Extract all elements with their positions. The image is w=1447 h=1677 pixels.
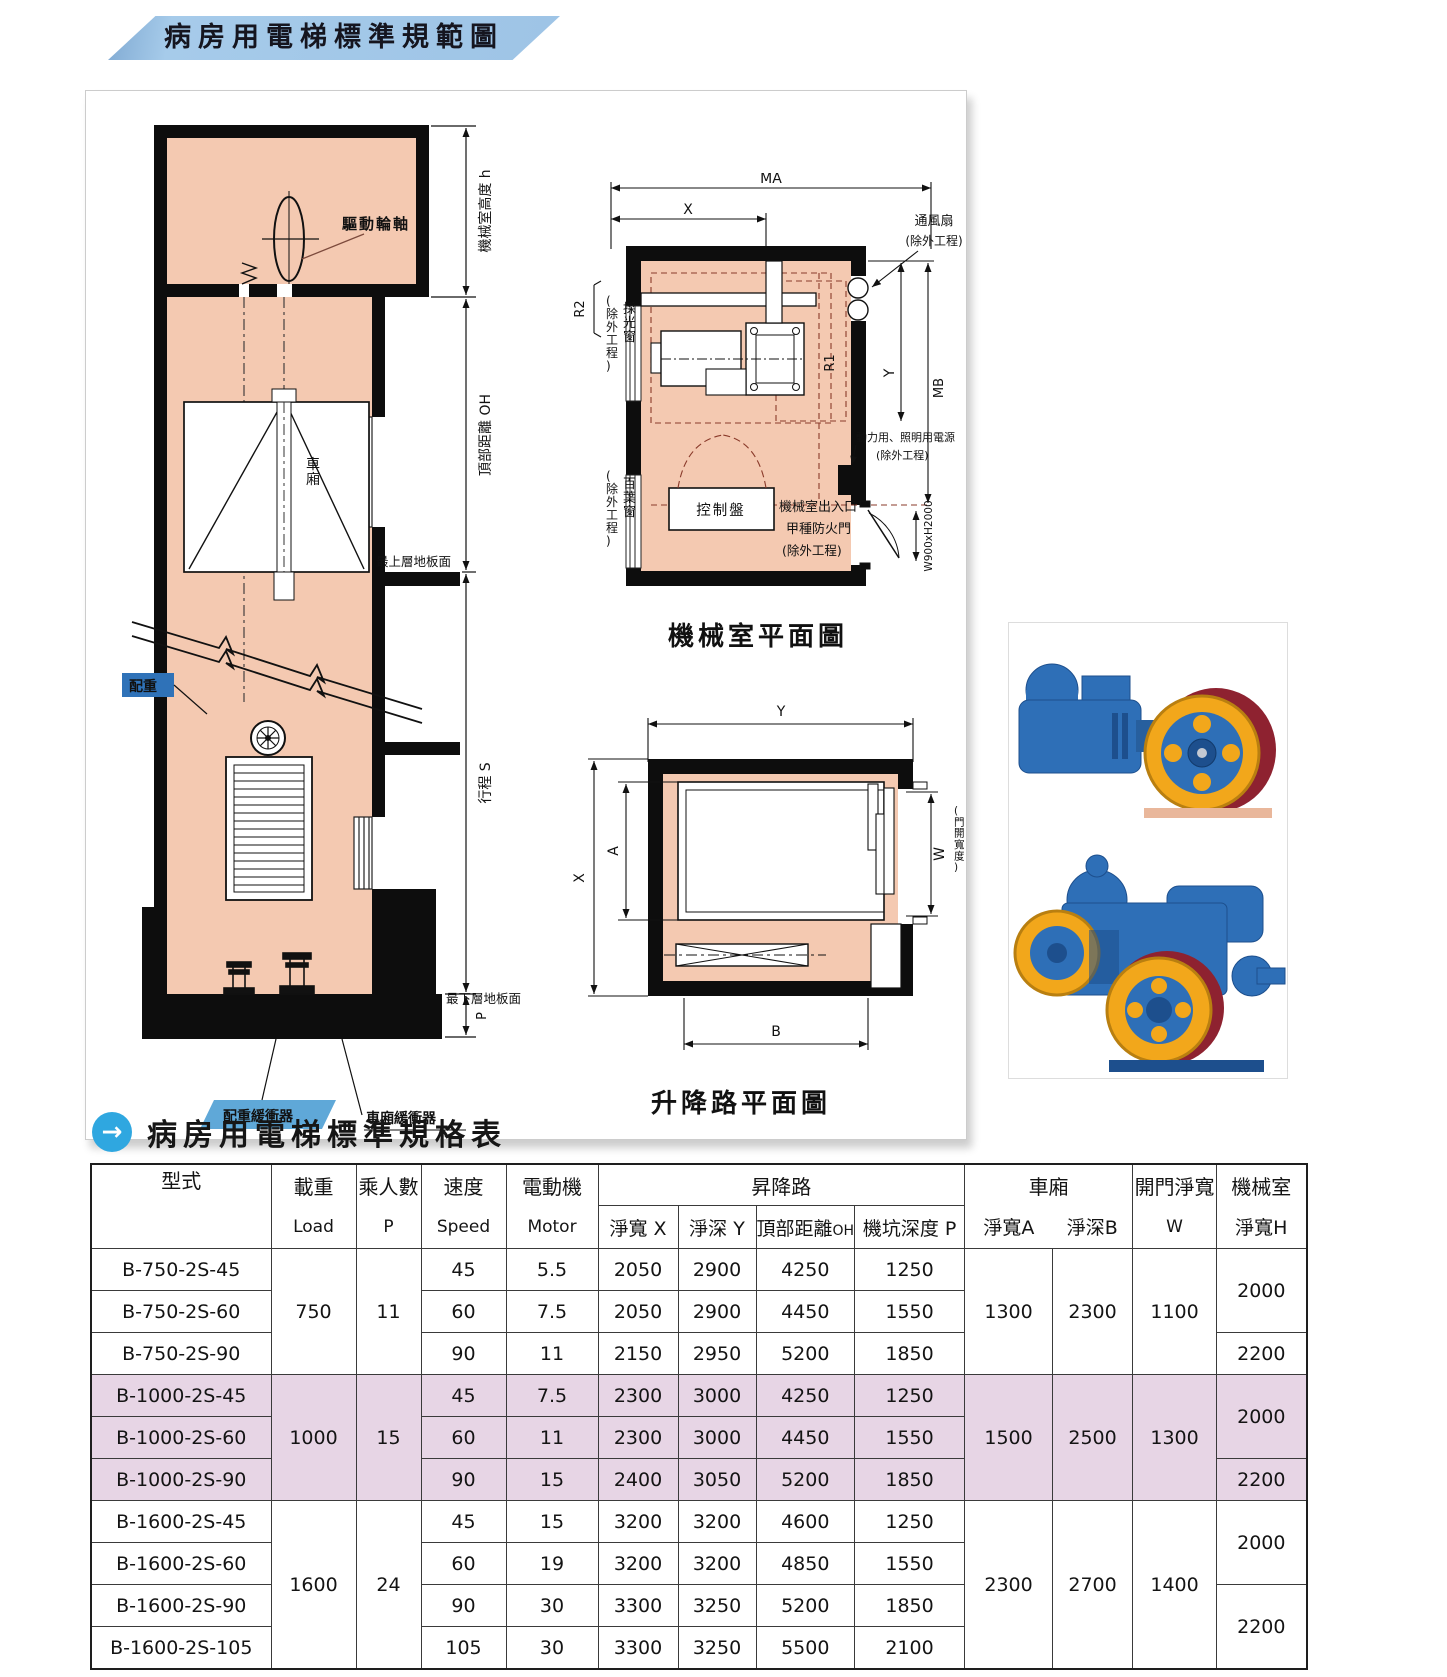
vent-grille bbox=[226, 757, 312, 900]
hw-car bbox=[678, 782, 884, 920]
car-label: 車廂 bbox=[306, 456, 320, 488]
passengers-cell: 24 bbox=[356, 1501, 421, 1670]
fan-label: 通風扇 bbox=[914, 213, 953, 229]
col-header-passengers-en: P bbox=[356, 1206, 421, 1249]
speed-cell: 60 bbox=[421, 1291, 506, 1333]
hw-oh-cell: 4450 bbox=[756, 1291, 855, 1333]
mr-dim-x: X bbox=[683, 202, 693, 218]
mr-dim-ma: MA bbox=[760, 173, 782, 187]
hw-y-cell: 3250 bbox=[678, 1627, 756, 1670]
col-header-load-zh: 載重 bbox=[271, 1164, 356, 1206]
door-w-cell: 1100 bbox=[1133, 1249, 1217, 1375]
hw-x-cell: 2300 bbox=[598, 1375, 678, 1417]
car-a-cell: 1500 bbox=[965, 1375, 1053, 1501]
top-floor-label: 最上層地板面 bbox=[376, 554, 451, 569]
model-cell: B-750-2S-45 bbox=[91, 1249, 271, 1291]
motor-cell: 7.5 bbox=[506, 1375, 598, 1417]
motor-cell: 19 bbox=[506, 1543, 598, 1585]
hw-y-cell: 3200 bbox=[678, 1543, 756, 1585]
hw-x-cell: 2400 bbox=[598, 1459, 678, 1501]
governor-sheave bbox=[251, 721, 285, 755]
hw-x-cell: 3300 bbox=[598, 1627, 678, 1670]
hw-door-width-note: (門開寬度) bbox=[954, 805, 965, 874]
passengers-cell: 15 bbox=[356, 1375, 421, 1501]
machine-room-plan-caption: 機械室平面圖 bbox=[668, 621, 848, 652]
model-cell: B-750-2S-90 bbox=[91, 1333, 271, 1375]
car-b-cell: 2700 bbox=[1053, 1501, 1133, 1670]
spec-section-title: 病房用電梯標準規格表 bbox=[147, 1110, 507, 1154]
mr-h-cell: 2200 bbox=[1217, 1585, 1307, 1670]
hw-pit-cell: 1550 bbox=[855, 1291, 965, 1333]
mr-h-cell: 2000 bbox=[1217, 1501, 1307, 1585]
col-header-hw-x: 淨寬 X bbox=[598, 1206, 678, 1249]
speed-cell: 45 bbox=[421, 1249, 506, 1291]
machine-room-plan: MA X bbox=[566, 173, 966, 678]
title-banner: 病房用電梯標準規範圖 bbox=[108, 16, 560, 60]
power-switch-box bbox=[838, 465, 864, 495]
speed-cell: 90 bbox=[421, 1459, 506, 1501]
mr-dim-r2: R2 bbox=[573, 300, 588, 317]
col-header-passengers-zh: 乘人數 bbox=[356, 1164, 421, 1206]
mr-h-cell: 2200 bbox=[1217, 1333, 1307, 1375]
spec-section-heading: → 病房用電梯標準規格表 bbox=[92, 1110, 507, 1154]
door-w-cell: 1300 bbox=[1133, 1375, 1217, 1501]
hw-pit-cell: 1850 bbox=[855, 1585, 965, 1627]
col-header-door-en: W bbox=[1133, 1206, 1217, 1249]
col-header-speed-zh: 速度 bbox=[421, 1164, 506, 1206]
motor-cell: 15 bbox=[506, 1501, 598, 1543]
load-cell: 1600 bbox=[271, 1501, 356, 1670]
louver-note: (除外工程) bbox=[606, 469, 618, 548]
hw-oh-cell: 4450 bbox=[756, 1417, 855, 1459]
car-a-cell: 2300 bbox=[965, 1501, 1053, 1670]
col-header-load-en: Load bbox=[271, 1206, 356, 1249]
hw-oh-cell: 5200 bbox=[756, 1333, 855, 1375]
hw-y-cell: 3250 bbox=[678, 1585, 756, 1627]
hw-y-cell: 3050 bbox=[678, 1459, 756, 1501]
mr-door bbox=[860, 501, 899, 569]
hw-oh-text: 頂部距離 bbox=[757, 1218, 833, 1240]
skylight-label: 採光窗 bbox=[623, 302, 636, 345]
counterweight-label-text: 配重 bbox=[129, 678, 157, 695]
power-note: (除外工程) bbox=[876, 448, 929, 462]
load-cell: 750 bbox=[271, 1249, 356, 1375]
mr-r2-bracket bbox=[594, 281, 601, 337]
skylight-note: (除外工程) bbox=[606, 294, 618, 373]
hw-y-cell: 3200 bbox=[678, 1501, 756, 1543]
speed-cell: 90 bbox=[421, 1333, 506, 1375]
traction-machine-photos bbox=[1008, 622, 1288, 1079]
hw-x-cell: 3300 bbox=[598, 1585, 678, 1627]
entrance-label-1: 機械室出入口 bbox=[779, 499, 857, 515]
model-cell: B-1600-2S-105 bbox=[91, 1627, 271, 1670]
speed-cell: 105 bbox=[421, 1627, 506, 1670]
hw-dim-x: X bbox=[572, 873, 588, 883]
hw-oh-cell: 5500 bbox=[756, 1627, 855, 1670]
col-header-machine-room-sub: 淨寬H bbox=[1217, 1206, 1307, 1249]
hw-pit-cell: 1850 bbox=[855, 1333, 965, 1375]
model-cell: B-1000-2S-45 bbox=[91, 1375, 271, 1417]
model-cell: B-1000-2S-90 bbox=[91, 1459, 271, 1501]
hw-dim-a: A bbox=[606, 846, 622, 856]
hw-pit-cell: 1250 bbox=[855, 1375, 965, 1417]
motor-cell: 15 bbox=[506, 1459, 598, 1501]
col-header-motor-zh: 電動機 bbox=[506, 1164, 598, 1206]
hw-dim-y: Y bbox=[776, 704, 786, 720]
traction-machine-photo-top bbox=[1019, 664, 1276, 818]
hw-y-cell: 2950 bbox=[678, 1333, 756, 1375]
hw-dim-w: W bbox=[932, 847, 948, 861]
col-header-model: 型式 bbox=[91, 1164, 271, 1249]
motor-cell: 30 bbox=[506, 1585, 598, 1627]
elevator-car: 車廂 bbox=[184, 389, 369, 600]
speed-cell: 60 bbox=[421, 1417, 506, 1459]
spec-table: 型式 載重 乘人數 速度 電動機 昇降路 車廂 開門淨寬 機械室 Load P … bbox=[90, 1163, 1308, 1670]
traction-machine-photo-art bbox=[1009, 623, 1287, 1078]
speed-cell: 45 bbox=[421, 1501, 506, 1543]
hw-oh-sub-text: OH bbox=[833, 1223, 855, 1239]
hw-oh-cell: 4250 bbox=[756, 1375, 855, 1417]
hw-oh-cell: 4250 bbox=[756, 1249, 855, 1291]
model-cell: B-1600-2S-45 bbox=[91, 1501, 271, 1543]
hw-x-cell: 2150 bbox=[598, 1333, 678, 1375]
fan-note: (除外工程) bbox=[905, 233, 962, 248]
hw-pit-cell: 1250 bbox=[855, 1249, 965, 1291]
mr-dim-r1: R1 bbox=[823, 354, 838, 371]
col-header-hw-oh: 頂部距離OH bbox=[756, 1206, 855, 1249]
arrow-circle-icon: → bbox=[92, 1112, 132, 1152]
mr-h-cell: 2200 bbox=[1217, 1459, 1307, 1501]
motor-cell: 5.5 bbox=[506, 1249, 598, 1291]
car-b-cell: 2500 bbox=[1053, 1375, 1133, 1501]
entrance-label-3: (除外工程) bbox=[782, 543, 842, 558]
passengers-cell: 11 bbox=[356, 1249, 421, 1375]
control-panel-label: 控制盤 bbox=[696, 502, 746, 519]
hw-counterweight bbox=[664, 944, 826, 966]
hw-y-cell: 2900 bbox=[678, 1249, 756, 1291]
hw-x-cell: 2050 bbox=[598, 1291, 678, 1333]
hoistway-plan-caption: 升降路平面圖 bbox=[651, 1088, 831, 1119]
dim-pit-depth: P bbox=[475, 1012, 490, 1020]
traction-machine-photo-bottom bbox=[1015, 855, 1285, 1072]
motor-cell: 7.5 bbox=[506, 1291, 598, 1333]
col-header-car: 車廂 bbox=[965, 1164, 1133, 1206]
power-label: 動力用、照明用電源 bbox=[856, 430, 955, 444]
mr-dim-y: Y bbox=[882, 368, 898, 378]
hw-y-cell: 3000 bbox=[678, 1375, 756, 1417]
hw-oh-cell: 4850 bbox=[756, 1543, 855, 1585]
table-row: B-1600-2S-45 1600 24 45 15 3200 3200 460… bbox=[91, 1501, 1307, 1543]
motor-cell: 11 bbox=[506, 1417, 598, 1459]
table-header-row-2: Load P Speed Motor 淨寬 X 淨深 Y 頂部距離OH 機坑深度… bbox=[91, 1206, 1307, 1249]
col-header-hw-pit: 機坑深度 P bbox=[855, 1206, 965, 1249]
hw-x-cell: 2300 bbox=[598, 1417, 678, 1459]
dim-overhead: 頂部距離 OH bbox=[477, 394, 494, 476]
table-header-row-1: 型式 載重 乘人數 速度 電動機 昇降路 車廂 開門淨寬 機械室 bbox=[91, 1164, 1307, 1206]
entrance-label-2: 甲種防火門 bbox=[786, 521, 851, 537]
model-cell: B-1600-2S-90 bbox=[91, 1585, 271, 1627]
col-header-car-a: 淨寬A bbox=[965, 1206, 1053, 1249]
hw-dim-b: B bbox=[771, 1024, 781, 1040]
col-header-speed-en: Speed bbox=[421, 1206, 506, 1249]
louver-label: 百葉窗 bbox=[623, 477, 636, 520]
car-b-cell: 2300 bbox=[1053, 1249, 1133, 1375]
col-header-motor-en: Motor bbox=[506, 1206, 598, 1249]
table-row: B-750-2S-45 750 11 45 5.5 2050 2900 4250… bbox=[91, 1249, 1307, 1291]
hw-oh-cell: 5200 bbox=[756, 1459, 855, 1501]
hw-x-cell: 3200 bbox=[598, 1543, 678, 1585]
mr-h-cell: 2000 bbox=[1217, 1249, 1307, 1333]
col-header-car-b: 淨深B bbox=[1053, 1206, 1133, 1249]
hoistway-plan: Y X A bbox=[526, 686, 966, 1136]
hw-oh-cell: 5200 bbox=[756, 1585, 855, 1627]
hw-dim-top bbox=[648, 718, 913, 762]
dim-machine-room-height: 機械室高度 h bbox=[477, 169, 494, 252]
hw-pit-cell: 1850 bbox=[855, 1459, 965, 1501]
col-header-door-zh: 開門淨寬 bbox=[1133, 1164, 1217, 1206]
hw-oh-cell: 4600 bbox=[756, 1501, 855, 1543]
shaft-section-diagram: 驅動輪軸 車廂 最上層地板面 配重 bbox=[114, 117, 569, 1137]
diagram-panel: 驅動輪軸 車廂 最上層地板面 配重 bbox=[85, 90, 967, 1140]
mr-dim-mb: MB bbox=[932, 378, 947, 398]
mr-h-cell: 2000 bbox=[1217, 1375, 1307, 1459]
car-a-cell: 1300 bbox=[965, 1249, 1053, 1375]
col-header-hoistway: 昇降路 bbox=[598, 1164, 965, 1206]
dim-travel: 行程 S bbox=[478, 762, 494, 803]
speed-cell: 60 bbox=[421, 1543, 506, 1585]
hw-pit-cell: 1550 bbox=[855, 1417, 965, 1459]
drive-sheave-label: 驅動輪軸 bbox=[342, 215, 410, 233]
fan-leader bbox=[872, 251, 918, 287]
col-header-hw-y: 淨深 Y bbox=[678, 1206, 756, 1249]
table-row: B-1000-2S-45 1000 15 45 7.5 2300 3000 42… bbox=[91, 1375, 1307, 1417]
hw-x-cell: 3200 bbox=[598, 1501, 678, 1543]
mr-door-dim: W900xH2000 bbox=[923, 500, 935, 571]
hw-pit-cell: 1550 bbox=[855, 1543, 965, 1585]
motor-cell: 30 bbox=[506, 1627, 598, 1670]
speed-cell: 45 bbox=[421, 1375, 506, 1417]
col-header-machine-room-zh: 機械室 bbox=[1217, 1164, 1307, 1206]
speed-cell: 90 bbox=[421, 1585, 506, 1627]
motor-cell: 11 bbox=[506, 1333, 598, 1375]
load-cell: 1000 bbox=[271, 1375, 356, 1501]
model-cell: B-1000-2S-60 bbox=[91, 1417, 271, 1459]
hw-y-cell: 2900 bbox=[678, 1291, 756, 1333]
bottom-floor-label: 最下層地板面 bbox=[446, 991, 521, 1006]
hw-pit-cell: 2100 bbox=[855, 1627, 965, 1670]
page-title: 病房用電梯標準規範圖 bbox=[108, 16, 560, 60]
hw-pit-cell: 1250 bbox=[855, 1501, 965, 1543]
hw-y-cell: 3000 bbox=[678, 1417, 756, 1459]
door-w-cell: 1400 bbox=[1133, 1501, 1217, 1670]
model-cell: B-750-2S-60 bbox=[91, 1291, 271, 1333]
hw-x-cell: 2050 bbox=[598, 1249, 678, 1291]
model-cell: B-1600-2S-60 bbox=[91, 1543, 271, 1585]
